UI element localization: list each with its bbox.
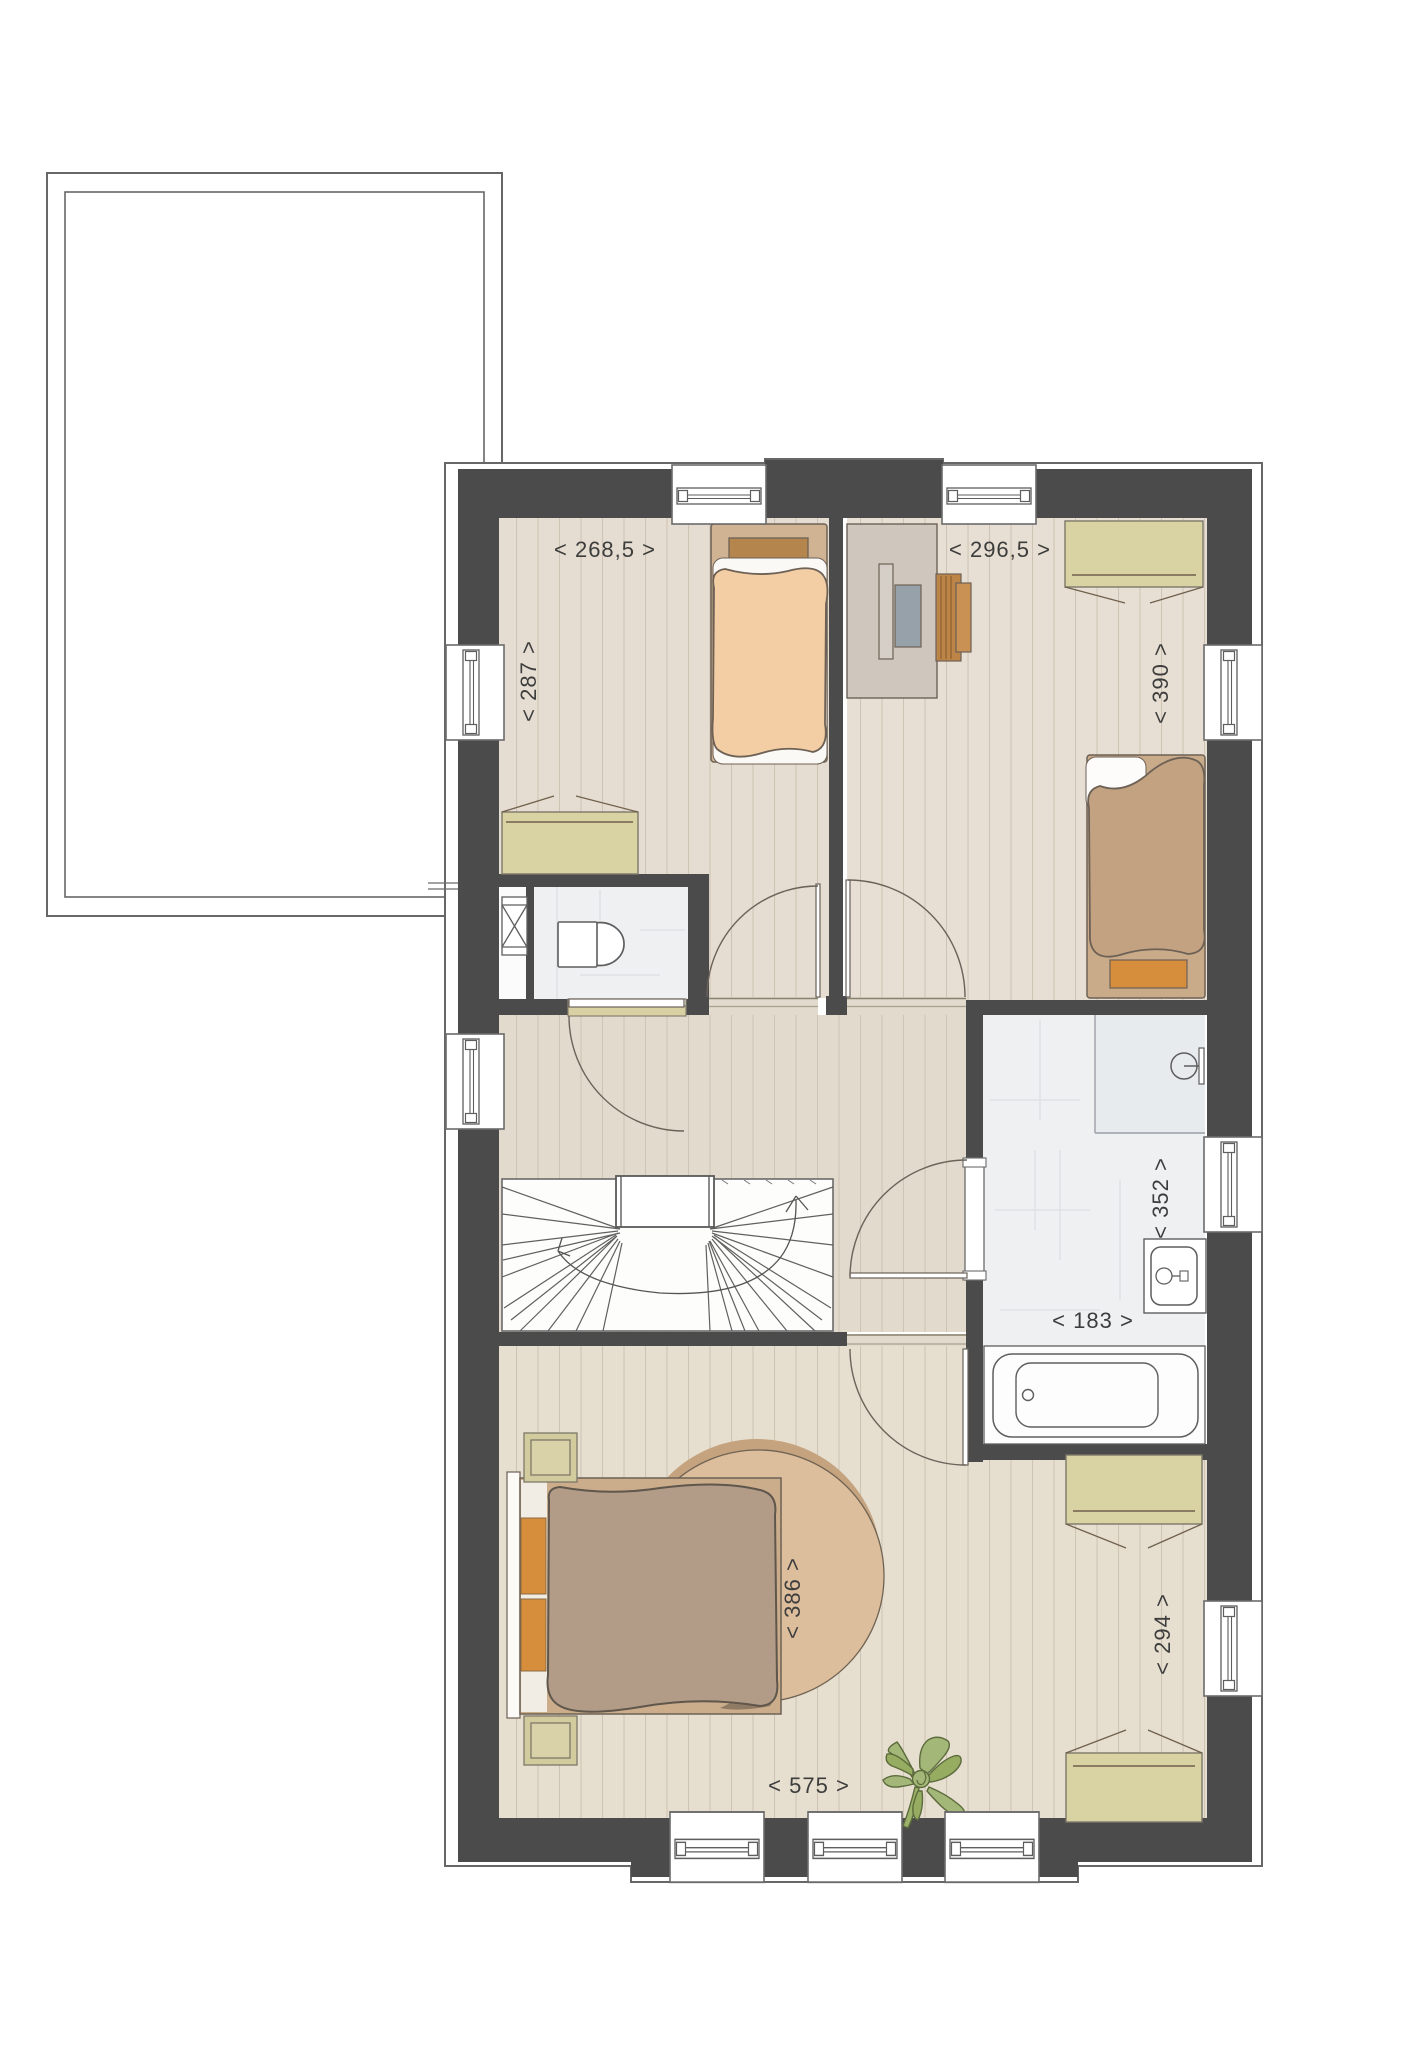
svg-text:< 268,5 >: < 268,5 > (554, 537, 656, 562)
svg-text:< 575 >: < 575 > (768, 1773, 850, 1798)
svg-text:< 386 >: < 386 > (780, 1557, 805, 1639)
svg-text:< 294 >: < 294 > (1150, 1593, 1175, 1675)
svg-text:< 352 >: < 352 > (1148, 1157, 1173, 1239)
svg-text:< 183 >: < 183 > (1052, 1308, 1134, 1333)
svg-text:< 296,5 >: < 296,5 > (949, 537, 1051, 562)
svg-text:< 390 >: < 390 > (1148, 642, 1173, 724)
svg-text:< 287 >: < 287 > (516, 640, 541, 722)
